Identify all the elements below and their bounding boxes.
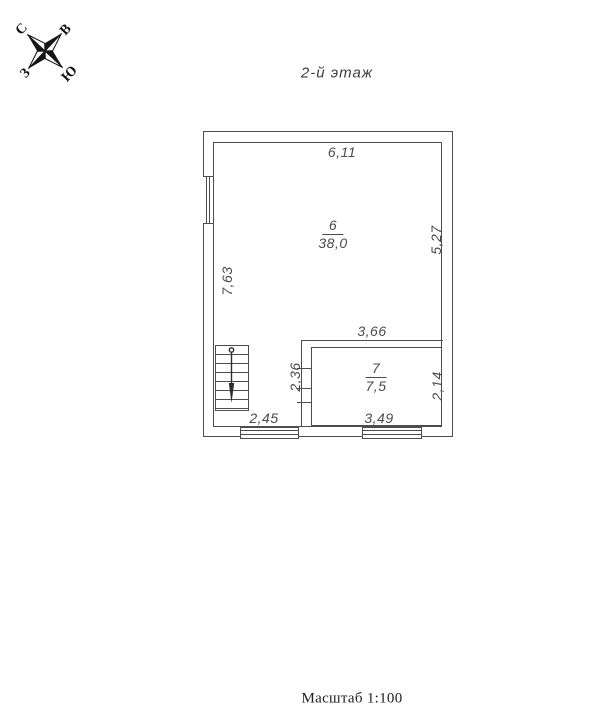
window-left-wall bbox=[203, 176, 213, 224]
dim-room7-height: 2,14 bbox=[429, 371, 445, 400]
window-pane-line bbox=[241, 434, 298, 435]
dim-mid-wall-width: 3,66 bbox=[357, 323, 386, 339]
dim-room7-width: 3,49 bbox=[364, 410, 393, 426]
window-pane-line bbox=[206, 177, 207, 223]
partition-wall-room6-room7 bbox=[301, 340, 443, 341]
room6-label: 6 38,0 bbox=[318, 217, 347, 252]
window-pane-line bbox=[209, 177, 210, 223]
window-bottom-left bbox=[240, 427, 299, 439]
floor-plan-page: С В Ю З 2-й этаж 6,11 5,27 7,63 3,66 2,3… bbox=[0, 0, 602, 723]
compass-rose: С В Ю З bbox=[6, 12, 84, 90]
room6-area: 38,0 bbox=[318, 235, 347, 251]
compass-west-label: З bbox=[17, 65, 34, 82]
scale-label: Масштаб 1:100 bbox=[301, 691, 402, 708]
dim-bottom-left-width: 2,45 bbox=[249, 410, 278, 426]
dim-inner-wall-height: 2,36 bbox=[287, 362, 303, 391]
page-title: 2-й этаж bbox=[301, 65, 373, 82]
window-pane-line bbox=[363, 430, 421, 431]
window-pane-line bbox=[363, 434, 421, 435]
dim-top-width: 6,11 bbox=[328, 144, 356, 160]
room7-number: 7 bbox=[366, 360, 386, 378]
room6-number: 6 bbox=[323, 217, 343, 235]
window-pane-line bbox=[241, 430, 298, 431]
wall-tick bbox=[297, 402, 311, 403]
window-bottom-right bbox=[362, 427, 422, 439]
dim-left-height: 7,63 bbox=[219, 266, 235, 295]
stairs-direction-arrow bbox=[215, 345, 248, 410]
room7-label: 7 7,5 bbox=[366, 360, 387, 395]
room7-area: 7,5 bbox=[366, 378, 387, 394]
dim-right-height: 5,27 bbox=[428, 225, 444, 254]
